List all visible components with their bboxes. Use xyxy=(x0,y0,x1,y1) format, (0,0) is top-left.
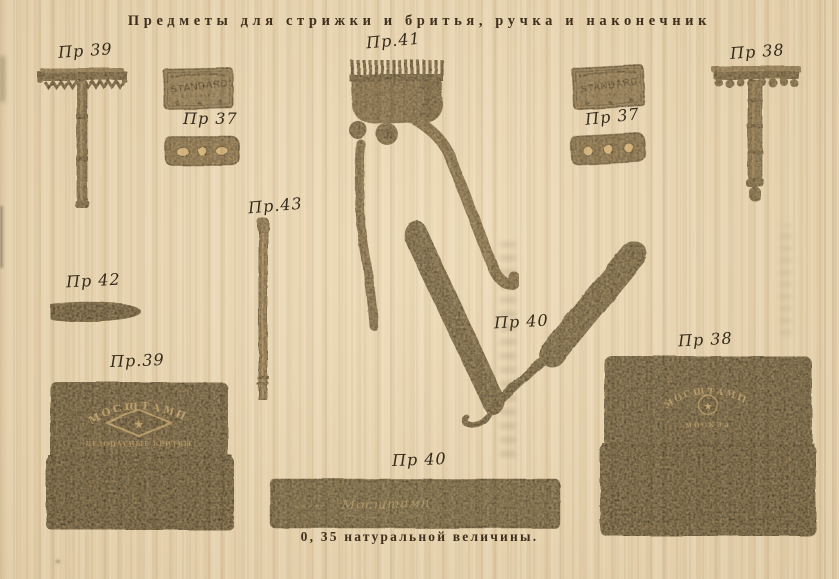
box-logo-script-text: Мосштамп xyxy=(341,495,430,513)
catalog-page: Предметы для стрижки и бритья, ручка и н… xyxy=(0,0,839,579)
scan-edge-smudge-mid xyxy=(0,206,3,268)
label-razor-case-right: Пр 38 xyxy=(678,329,734,351)
label-razor-case-left: Пр.39 xyxy=(110,350,165,371)
tip-nozzle-image xyxy=(46,296,148,328)
razor-case-right-image: МОСШТАМП ★ МОСКВА xyxy=(596,352,824,544)
scan-speck xyxy=(56,560,60,563)
label-blade-packet-left: Пр 37 xyxy=(183,109,238,128)
razor-case-left-image: МОСШТАМП ★ БЕЗОПАСНЫЕ БРИТВЫ xyxy=(42,376,238,536)
scale-caption: 0, 35 натуральной величины. xyxy=(0,529,839,545)
label-razor-box: Пр 40 xyxy=(392,449,447,470)
razor-blade-right-image xyxy=(567,128,649,172)
page-title: Предметы для стрижки и бритья, ручка и н… xyxy=(0,13,839,30)
case-left-logo-star: ★ xyxy=(134,418,145,432)
case-right-logo-sub-text: МОСКВА xyxy=(685,422,731,429)
label-tip-nozzle: Пр 42 xyxy=(66,270,122,292)
blade-packet-left-image: STANDARD STANDARD xyxy=(160,64,238,114)
safety-razor-left-image xyxy=(36,58,130,218)
safety-razor-right-image xyxy=(708,58,804,210)
bleedthrough-smudge-right xyxy=(780,225,792,335)
scan-edge-smudge-top xyxy=(0,56,5,102)
case-left-logo-sub-text: БЕЗОПАСНЫЕ БРИТВЫ xyxy=(86,441,193,448)
case-right-logo-star: ★ xyxy=(704,402,713,413)
packet-left-brand-small-text: STANDARD xyxy=(181,93,218,99)
scan-edge-line xyxy=(824,0,826,579)
label-handle-rod: Пр.43 xyxy=(247,194,303,218)
label-hair-clipper: Пр.41 xyxy=(365,29,421,53)
razor-blade-left-image xyxy=(162,132,242,172)
handle-rod-image xyxy=(252,216,276,406)
